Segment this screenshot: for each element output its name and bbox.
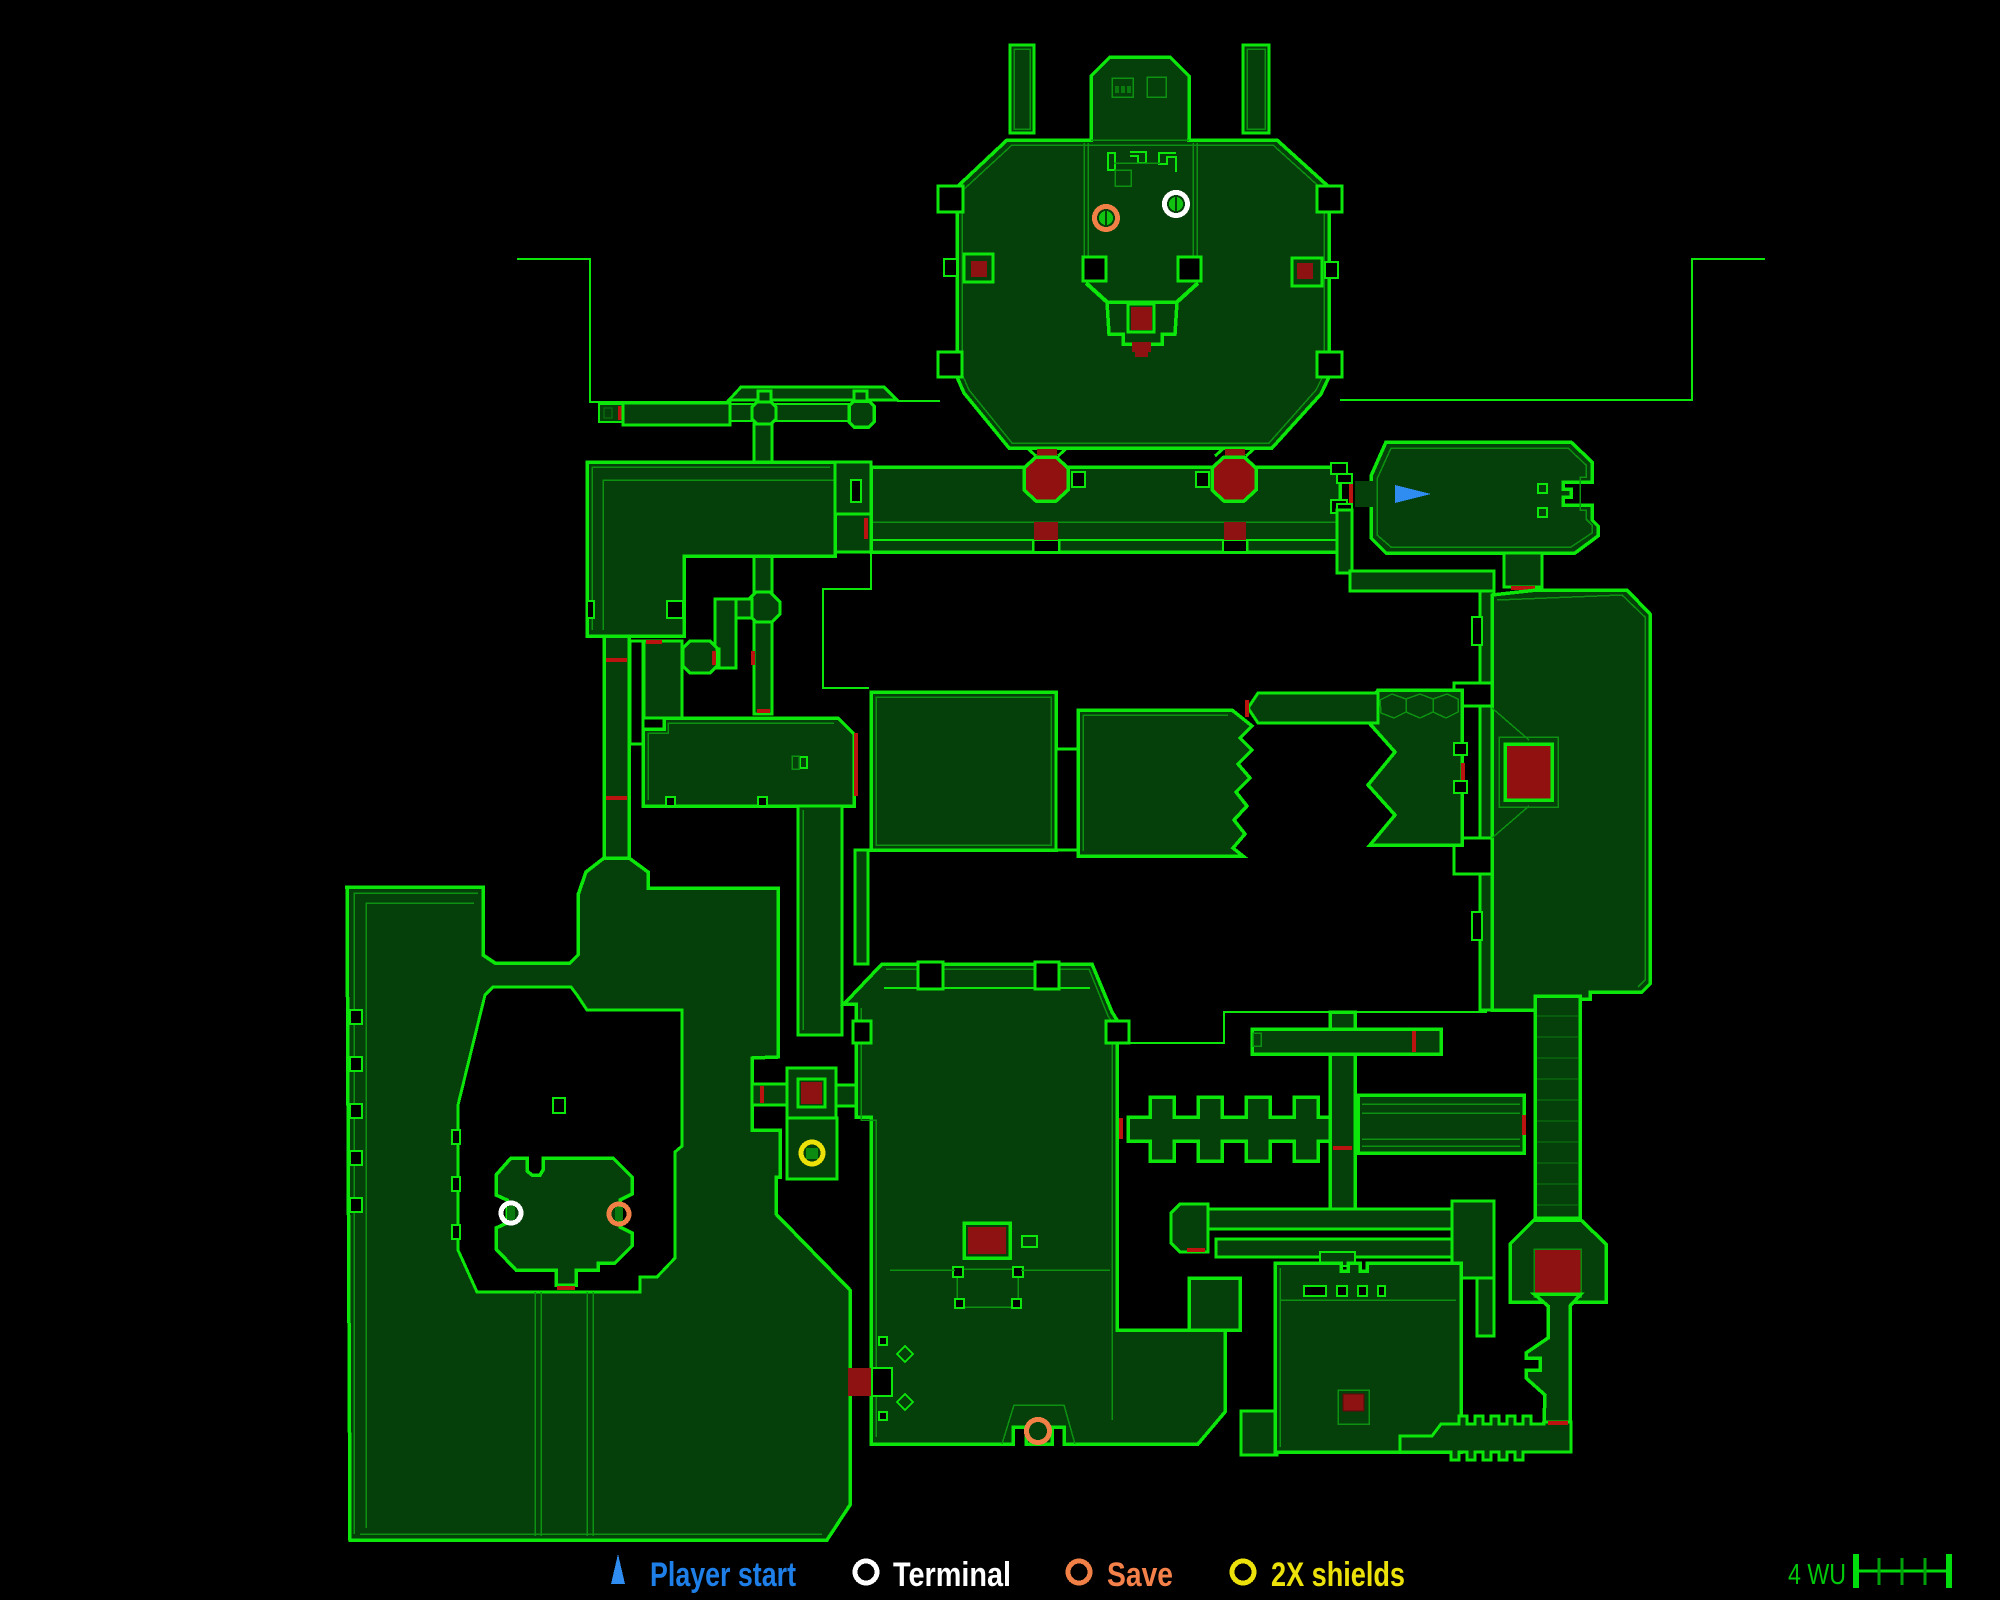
svg-text:2X shields: 2X shields: [1271, 1556, 1405, 1594]
svg-text:Save: Save: [1107, 1556, 1173, 1594]
svg-text:4 WU: 4 WU: [1788, 1559, 1846, 1591]
svg-text:Player start: Player start: [650, 1556, 796, 1594]
svg-text:Terminal: Terminal: [893, 1556, 1011, 1594]
